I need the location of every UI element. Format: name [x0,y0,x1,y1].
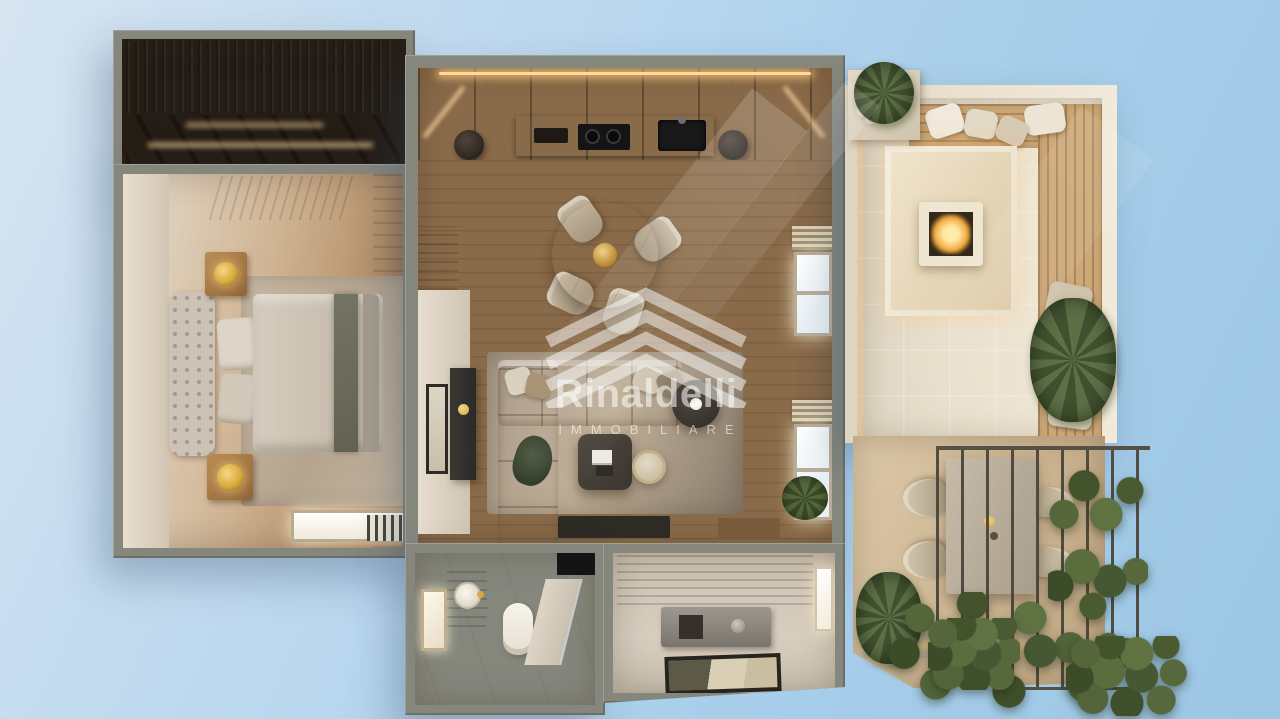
apartment-floorplan-render: Rinaldelli IMMOBILIARE [0,0,1280,719]
speaker-knob [458,404,469,415]
floor-mat [718,518,780,538]
closet-room [113,30,415,174]
side-table [672,380,720,428]
fire-pit [919,202,983,266]
closet-interior [122,39,406,165]
bedroom [113,164,413,558]
burner [606,129,621,144]
cup [690,398,702,410]
entry-interior [613,553,835,693]
dining-table [552,202,658,308]
entry-window [815,567,833,631]
agave-plant [854,62,914,124]
kitchen-counter [516,116,714,156]
wood-accent-wall [617,553,813,605]
living-area [405,55,845,560]
climbing-greenery [928,618,1020,690]
table-lamp [214,262,238,286]
nightstand [207,454,253,500]
bathroom-vanity [447,565,487,627]
window-blind [792,400,832,422]
kitchen-led-right [783,86,826,139]
bar-stool [718,130,748,160]
tv-console [450,368,476,480]
book [592,450,612,463]
window-blind [792,226,832,250]
coffee-table [578,434,632,490]
bathroom-mirror [421,589,447,651]
wall-artwork [426,384,448,474]
bed-mattress [253,294,383,452]
nightstand [205,252,247,296]
bedroom-radiator [367,515,403,541]
kitchen [418,68,832,160]
fire-flame [931,214,971,254]
bar-stool [454,130,484,160]
kitchen-led-left [423,86,466,139]
cooktop [578,124,630,150]
bedroom-interior [123,174,403,548]
living-area-interior [418,68,832,547]
bed-headboard [169,292,215,456]
table-lamp [217,464,244,491]
potted-plant [782,476,828,520]
faucet [678,116,686,124]
console-knob [731,619,745,633]
wardrobe-cabinet [126,41,392,113]
bedroom-left-wall [123,174,169,548]
agave-plant [1030,298,1116,422]
console-panel [679,615,703,639]
sideboard-console [661,607,771,647]
faucet [477,591,484,598]
burner [585,129,600,144]
bedroom-door [209,176,354,220]
bench-pillow [1023,101,1067,136]
climbing-greenery [1066,636,1188,716]
closet-hanging-rails [126,115,400,163]
kitchen-sink [658,120,706,151]
kitchen-appliance [534,128,568,143]
interior-door [418,226,458,290]
bench-pillow [963,107,999,140]
pouf [632,450,666,484]
framed-artwork [664,653,781,693]
bathroom-interior [415,553,595,705]
shower-tray [557,553,595,575]
table-centerpiece [593,243,617,267]
kitchen-led-strip [439,72,812,75]
entry-hall [603,543,845,703]
book [596,466,613,476]
bathroom [405,543,605,715]
terrace-led-strip [857,98,862,443]
floor-mat [558,516,670,538]
living-window [794,252,832,336]
